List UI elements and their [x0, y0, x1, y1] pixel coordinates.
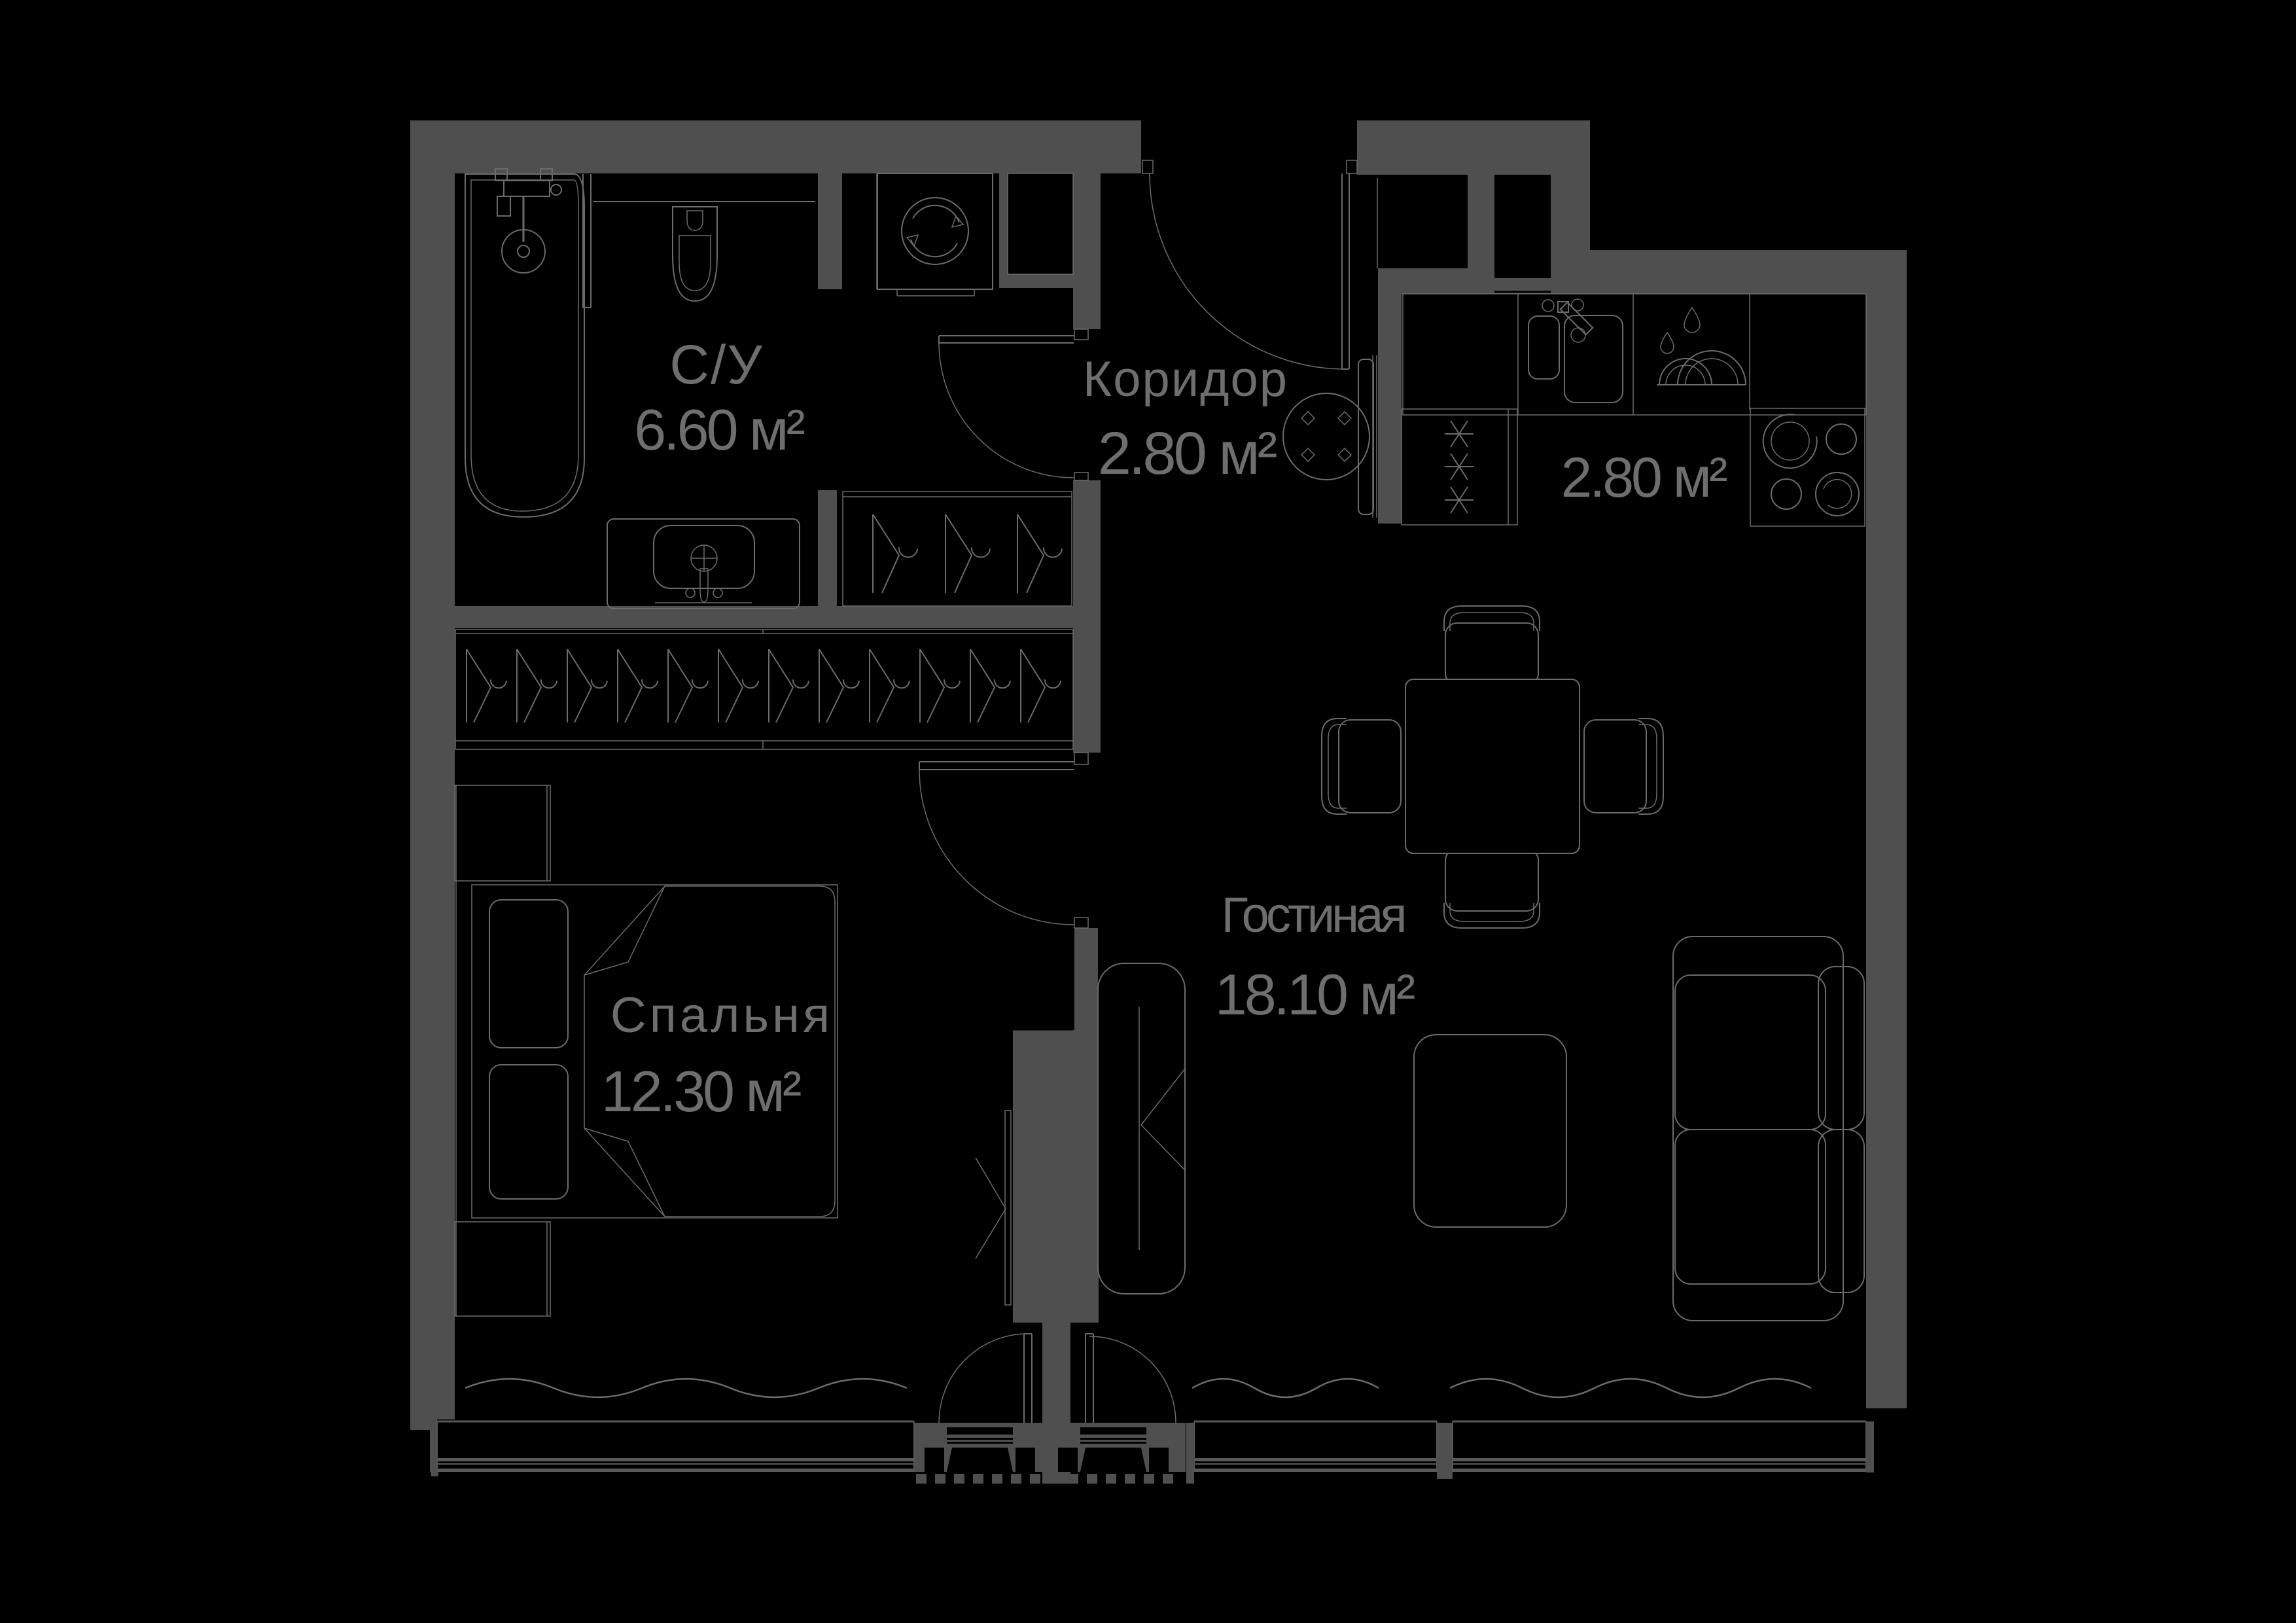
svg-text:18.10 м²: 18.10 м²	[1215, 962, 1415, 1027]
svg-text:Спальня: Спальня	[610, 988, 833, 1043]
svg-text:2.80 м²: 2.80 м²	[1098, 420, 1277, 487]
svg-text:6.60 м²: 6.60 м²	[634, 397, 804, 462]
svg-text:Коридор: Коридор	[1083, 351, 1288, 407]
svg-text:12.30 м²: 12.30 м²	[601, 1059, 801, 1124]
svg-text:2.80 м²: 2.80 м²	[1561, 446, 1726, 509]
svg-text:С/У: С/У	[669, 334, 763, 395]
svg-text:Гостиная: Гостиная	[1222, 887, 1404, 943]
